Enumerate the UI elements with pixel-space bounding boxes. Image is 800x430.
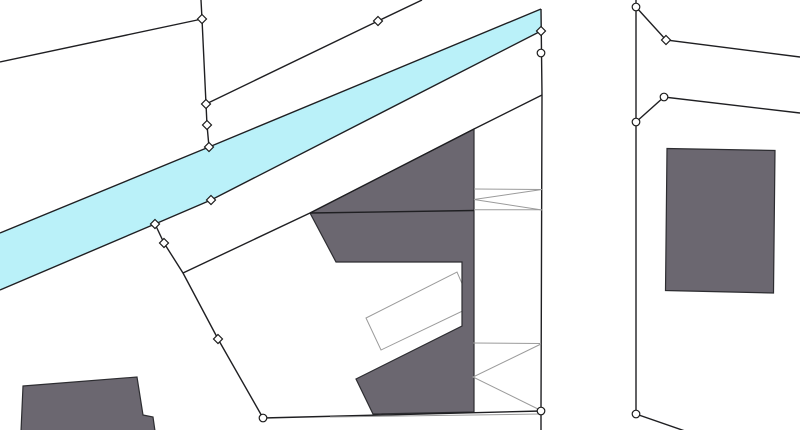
- overhang-mark-upper-top: [474, 189, 542, 190]
- vertex-marker-circle[interactable]: [537, 407, 545, 415]
- vertex-marker-circle[interactable]: [660, 93, 668, 101]
- parcel-line-vertical-main: [541, 9, 542, 430]
- map-canvas[interactable]: [0, 0, 800, 430]
- parcel-line-right-lower: [636, 97, 800, 122]
- vertex-marker-diamond[interactable]: [160, 239, 169, 248]
- vertex-marker-diamond[interactable]: [374, 17, 383, 26]
- cadastral-map[interactable]: [0, 0, 800, 430]
- vertex-marker-diamond[interactable]: [198, 15, 207, 24]
- parcel-line-upper-left: [0, 19, 202, 62]
- vertex-marker-circle[interactable]: [632, 3, 640, 11]
- vertex-marker-circle[interactable]: [259, 414, 267, 422]
- overhang-mark-upper-chevron: [474, 190, 542, 211]
- overhang-mark-lower-chevron: [473, 344, 541, 411]
- building-right: [666, 149, 776, 294]
- parcel-line-mid-diagonal: [183, 213, 310, 273]
- vertex-marker-circle[interactable]: [632, 118, 640, 126]
- building-bottom-left: [21, 377, 155, 430]
- parcel-line-left-chain: [155, 224, 263, 418]
- vertex-marker-diamond[interactable]: [214, 335, 223, 344]
- vertex-marker-diamond[interactable]: [202, 100, 211, 109]
- vertex-marker-circle[interactable]: [632, 410, 640, 418]
- parcel-line-right-upper: [636, 7, 800, 57]
- overhang-mark-lower-top: [473, 343, 541, 344]
- vertex-marker-circle[interactable]: [537, 49, 545, 57]
- vertex-marker-diamond[interactable]: [203, 121, 212, 130]
